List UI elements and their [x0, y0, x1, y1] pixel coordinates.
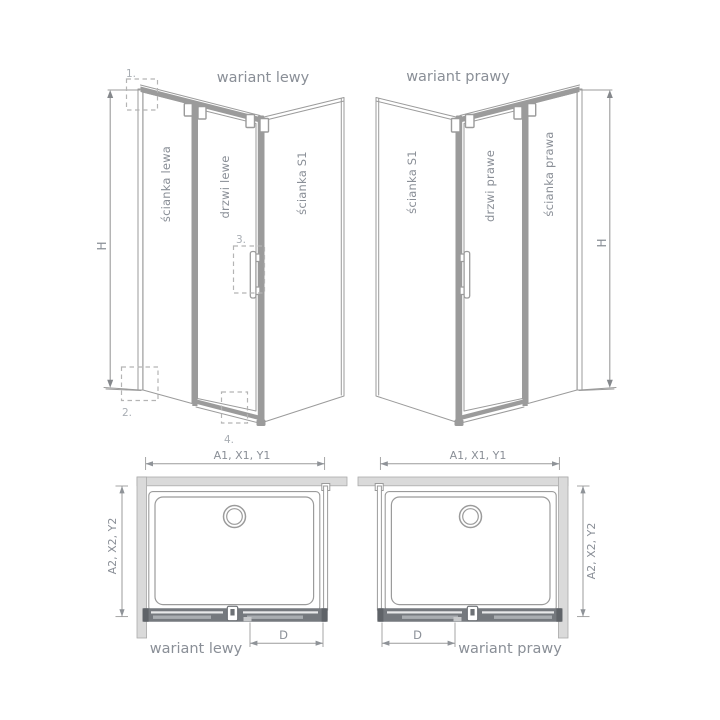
- right-variant-plan-view: [358, 457, 590, 647]
- left-variant-3d-view: [104, 85, 344, 426]
- right-door-label: drzwi prawe: [483, 150, 497, 222]
- shower-enclosure-diagram: wariant lewy wariant prawy ścianka lewa …: [0, 0, 720, 720]
- left-variant-plan-view: [116, 457, 348, 647]
- right-plan-width-dim-label: A1, X1, Y1: [450, 449, 507, 462]
- right-plan-depth-dim-label: A2, X2, Y2: [585, 523, 598, 580]
- left-plan-width-dim-label: A1, X1, Y1: [214, 449, 271, 462]
- left-plan-door-width-dim-label: D: [279, 628, 288, 642]
- left-plan-depth-dim-label: A2, X2, Y2: [106, 518, 119, 575]
- right-height-dim-label: H: [595, 238, 609, 247]
- right-plan-variant-label: wariant prawy: [458, 641, 562, 657]
- left-plan-variant-label: wariant lewy: [150, 641, 243, 657]
- left-side-panel-label: ścianka S1: [295, 151, 309, 215]
- right-variant-title: wariant prawy: [406, 69, 510, 85]
- callout-2-label: 2.: [122, 407, 132, 419]
- callout-3-label: 3.: [236, 234, 246, 246]
- right-wall-panel-label: ścianka prawa: [542, 131, 556, 216]
- callout-1-label: 1.: [126, 68, 136, 80]
- left-height-dim-label: H: [95, 241, 109, 250]
- right-plan-door-width-dim-label: D: [413, 628, 422, 642]
- left-door-label: drzwi lewe: [218, 155, 232, 218]
- diagram-svg: wariant lewy wariant prawy ścianka lewa …: [0, 0, 720, 720]
- callout-4-label: 4.: [224, 434, 234, 446]
- left-variant-title: wariant lewy: [217, 70, 310, 86]
- right-side-panel-label: ścianka S1: [405, 150, 419, 214]
- right-variant-3d-view: [376, 85, 616, 426]
- left-wall-panel-label: ścianka lewa: [159, 146, 173, 222]
